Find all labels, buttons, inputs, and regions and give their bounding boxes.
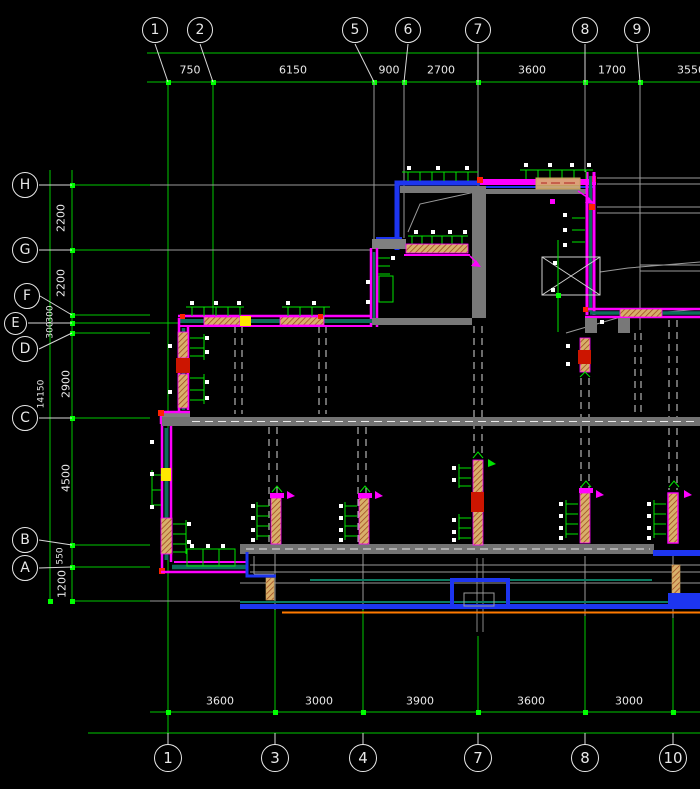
grid-bubble-top-7: 7 xyxy=(465,17,491,43)
entrance-door xyxy=(452,580,508,608)
grid-bubble-top-8: 8 xyxy=(572,17,598,43)
dim-row-300b: 300 xyxy=(47,321,56,338)
building-walls xyxy=(158,172,700,574)
dim-bottom-3600a: 3600 xyxy=(206,696,234,707)
grid-bubble-top-9: 9 xyxy=(624,17,650,43)
dim-overall-14150: 14150 xyxy=(38,380,47,409)
column-hatch-c4 xyxy=(345,486,383,544)
grid-bubble-row-C: C xyxy=(12,405,38,431)
dim-top-3550: 3550 xyxy=(677,65,700,76)
grid-bubble-row-H: H xyxy=(12,172,38,198)
dim-bottom-3000b: 3000 xyxy=(615,696,643,707)
dimension-grid-layer xyxy=(50,53,700,733)
dim-row-300a: 300 xyxy=(47,305,56,322)
grid-bubble-bottom-4: 4 xyxy=(349,744,377,772)
column-hatch-c7 xyxy=(459,452,496,545)
dimension-ticks xyxy=(48,80,676,715)
window-hatch-rowG xyxy=(406,244,468,253)
grid-bubble-bottom-10: 10 xyxy=(659,744,687,772)
grid-bubble-row-B: B xyxy=(12,527,38,553)
dim-top-750: 750 xyxy=(180,65,201,76)
marker-squares xyxy=(150,163,651,548)
grid-bubble-top-1: 1 xyxy=(142,17,168,43)
dim-bottom-3900: 3900 xyxy=(406,696,434,707)
annotation-combs xyxy=(152,170,593,566)
grid-bubble-row-G: G xyxy=(12,237,38,263)
dim-row-4500: 4500 xyxy=(61,464,72,492)
column-hatch-c8-lower xyxy=(566,481,604,543)
grid-bubble-top-5: 5 xyxy=(342,17,368,43)
grid-bubble-row-F: F xyxy=(14,283,40,309)
grid-bubble-bottom-3: 3 xyxy=(261,744,289,772)
dim-bottom-3000a: 3000 xyxy=(305,696,333,707)
grid-bubble-bottom-1: 1 xyxy=(154,744,182,772)
dim-row-550: 550 xyxy=(57,547,66,564)
grid-bubble-row-D: D xyxy=(12,336,38,362)
column-hatch-c10 xyxy=(654,481,692,543)
terrace-and-entrance xyxy=(240,552,700,613)
dim-top-3600: 3600 xyxy=(518,65,546,76)
dim-top-900: 900 xyxy=(379,65,400,76)
column-hatch-c8-upper xyxy=(578,338,591,377)
dim-top-2700: 2700 xyxy=(427,65,455,76)
bubble-stems xyxy=(28,44,673,744)
dim-row-1200: 1200 xyxy=(57,570,68,598)
plan-drawing xyxy=(0,0,700,789)
dim-row-2200a: 2200 xyxy=(56,204,67,232)
grid-bubble-row-E: E xyxy=(4,312,27,335)
grid-bubble-top-6: 6 xyxy=(395,17,421,43)
grid-bubble-top-2: 2 xyxy=(187,17,213,43)
dim-row-2200b: 2200 xyxy=(56,269,67,297)
dim-top-1700: 1700 xyxy=(598,65,626,76)
cad-canvas[interactable]: 1 2 5 6 7 8 9 1 3 4 7 8 10 H G F E D C B… xyxy=(0,0,700,789)
column-hatch-c3 xyxy=(257,486,295,544)
dim-bottom-3600b: 3600 xyxy=(517,696,545,707)
grid-bubble-bottom-7: 7 xyxy=(464,744,492,772)
dim-top-6150: 6150 xyxy=(279,65,307,76)
dim-row-2900: 2900 xyxy=(61,370,72,398)
grid-bubble-row-A: A xyxy=(12,555,38,581)
grid-bubble-bottom-8: 8 xyxy=(571,744,599,772)
